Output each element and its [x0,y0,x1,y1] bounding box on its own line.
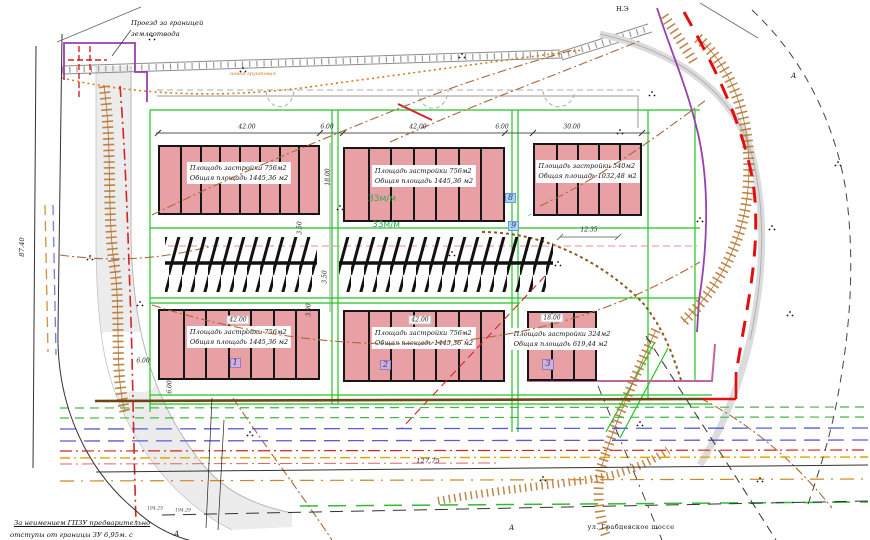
dimension-label: 87.40 [18,237,26,256]
ne-corner-label: Н.Э [616,5,629,13]
dimension-label: 6.00 [167,380,174,393]
note-bottom-left-line2: отступы от границы ЗУ 6,95м. с [10,530,133,540]
note-top-left: Проезд за границей землеотвода [131,18,203,40]
building-bottom-right: Площадь застройки 324м2Общая площадь 619… [527,311,597,381]
garage-section-divider [295,311,297,378]
dimension-label: 42.00 [238,124,255,131]
utility-node-badge: 8 [505,193,516,203]
street-name-label: ул. Грабцевское шоссе [566,523,696,531]
dimension-label: 194.25 [147,507,163,512]
dimension-label: 3.50 [322,270,329,283]
dimension-label: 6.00 [136,358,149,365]
dimension-label: 6.00 [320,124,333,131]
building-area-label: Площадь застройки 756м2Общая площадь 144… [187,162,291,184]
dimension-label: 12.35 [580,227,597,234]
building-area-label: Площадь застройки 324м2Общая площадь 619… [511,328,614,350]
dimension-label: 42.00 [409,317,430,324]
dimension-label: 194.29 [175,509,191,514]
point-a-label: А [791,72,796,80]
note-line: землеотвода [131,29,203,40]
building-top-right: Площадь застройки 540м2Общая площадь 103… [533,143,642,216]
garage-section-divider [368,149,370,220]
dimension-label: 18.00 [325,168,332,185]
point-a-label: А [509,524,514,532]
note-bottom-left-line1: За неимением ГПЗУ предварительно [14,518,150,529]
building-area-label: Площадь застройки 540м2Общая площадь 103… [535,160,639,182]
site-plan-canvas: Площадь застройки 756м2Общая площадь 144… [0,0,870,540]
building-top-middle: Площадь застройки 756м2Общая площадь 144… [343,147,505,222]
dimension-label: 30.00 [563,124,580,131]
building-number-badge: 3 [542,359,553,370]
garage-section-divider [480,149,482,220]
dimension-label: 3.00 [306,303,313,316]
note-line: Проезд за границей [131,18,203,29]
building-area-label: Площадь застройки 756м2Общая площадь 144… [372,165,476,187]
dimension-label: 18.00 [541,315,562,322]
parking-capacity-label: 33м/м [372,220,400,230]
building-top-left: Площадь застройки 756м2Общая площадь 144… [158,145,320,215]
utility-node-badge: 9 [508,221,519,231]
new-dirt-road-label: новая грунтовая [230,71,276,77]
dimension-label: 42.00 [409,124,426,131]
building-number-badge: 1 [230,358,241,369]
building-area-label: Площадь застройки 756м2Общая площадь 144… [372,327,476,349]
garage-section-divider [368,312,370,380]
dimension-label: 127.75 [416,457,440,465]
dimension-label: 3.50 [297,221,304,234]
building-number-badge: 2 [380,360,391,371]
point-a-label: А [174,530,179,538]
building-area-label: Площадь застройки 756м2Общая площадь 144… [187,326,291,348]
dimension-label: 6.00 [495,124,508,131]
garage-section-divider [183,311,185,378]
dimension-label: 42.00 [227,317,248,324]
parking-capacity-label: 33м/м [368,194,396,204]
garage-section-divider [480,312,482,380]
parking-hatch-strip [165,237,553,292]
garage-section-divider [298,147,300,213]
garage-section-divider [180,147,182,213]
